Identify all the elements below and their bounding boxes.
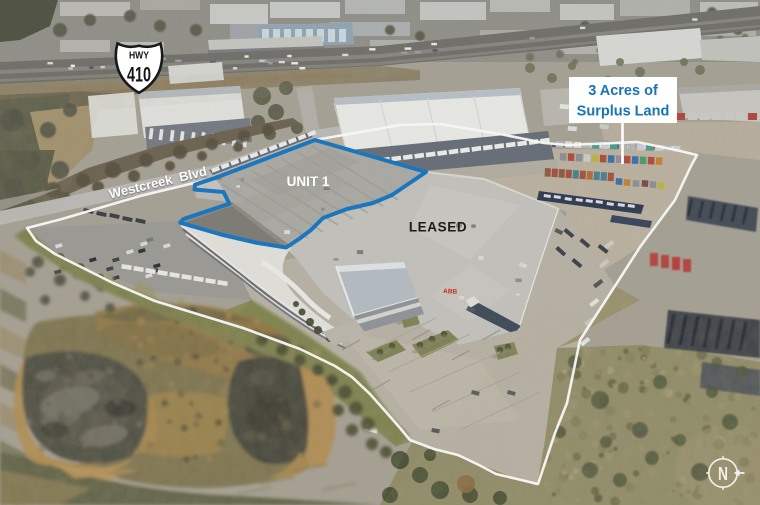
- svg-text:410: 410: [127, 64, 151, 87]
- svg-text:N: N: [718, 464, 728, 484]
- svg-text:HWY: HWY: [129, 51, 149, 62]
- svg-text:UNIT 1: UNIT 1: [287, 174, 330, 189]
- svg-text:3 Acres of: 3 Acres of: [588, 83, 658, 99]
- svg-text:LEASED: LEASED: [409, 220, 467, 235]
- svg-text:Surplus Land: Surplus Land: [577, 104, 670, 120]
